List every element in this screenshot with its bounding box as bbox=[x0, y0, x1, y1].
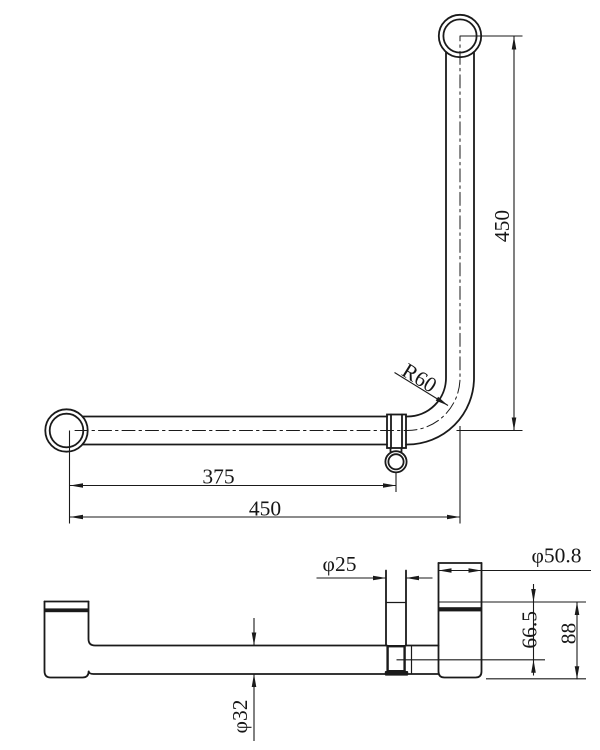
dim-post-diameter bbox=[317, 576, 433, 581]
front-view bbox=[45, 15, 481, 473]
vertical-450-label: 450 bbox=[490, 210, 514, 242]
horizontal-450-label: 450 bbox=[249, 497, 281, 521]
rail-diameter-label: φ32 bbox=[228, 700, 252, 734]
drawing-sheet: 450 375 450 R60 φ25 φ50.8 66.5 88 φ32 bbox=[0, 0, 600, 750]
left-flange-profile bbox=[45, 602, 388, 678]
dim-rail-diameter bbox=[252, 618, 257, 741]
dim-flange-diameter bbox=[439, 568, 592, 573]
post-diameter-label: φ25 bbox=[323, 552, 357, 576]
plan-view-dimensions bbox=[252, 568, 591, 741]
grab-rail-technical-drawing: 450 375 450 R60 φ25 φ50.8 66.5 88 φ32 bbox=[0, 0, 600, 750]
support-bracket bbox=[385, 415, 406, 473]
bend-radius-label: R60 bbox=[398, 358, 441, 397]
overall-projection-label: 88 bbox=[557, 623, 581, 645]
front-view-dimensions bbox=[70, 36, 523, 524]
wall-to-centerline-label: 66.5 bbox=[518, 611, 542, 649]
flange-diameter-label: φ50.8 bbox=[531, 544, 581, 568]
offset-375-label: 375 bbox=[202, 465, 234, 489]
